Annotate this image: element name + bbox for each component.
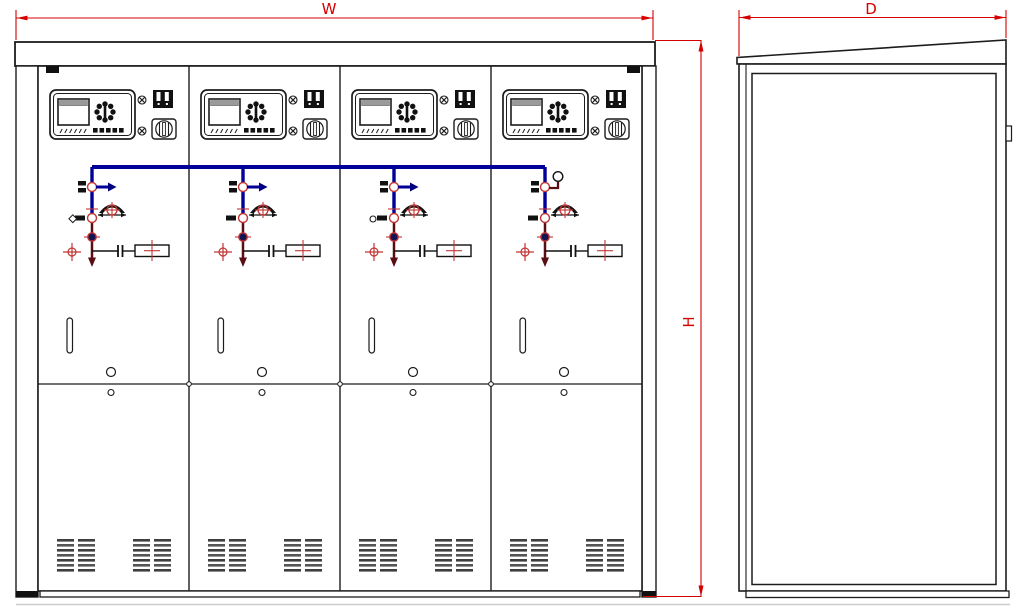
height-label: H [680, 316, 698, 327]
depth-label: D [865, 0, 877, 18]
drawing-canvas: W H D [0, 0, 1021, 608]
base-channel [40, 591, 640, 597]
side-view [737, 40, 1012, 598]
width-label: W [322, 0, 337, 18]
dim-arrow-right [642, 16, 653, 21]
side-base-channel [746, 591, 1009, 598]
dimension-w: W [16, 0, 653, 40]
front-view [15, 42, 656, 597]
dim-arrow-left [740, 15, 751, 20]
right-end-plate [642, 66, 656, 597]
corner-tab-right [627, 66, 640, 73]
dim-arrow-right [995, 15, 1006, 20]
drawing-sheet: W H D [0, 0, 1021, 608]
dim-arrow-up [699, 41, 704, 52]
sloped-top-plate [737, 40, 1006, 64]
hinge [1006, 126, 1012, 141]
side-door-panel [752, 74, 996, 585]
corner-tab-left [46, 66, 59, 73]
top-plate [15, 42, 655, 66]
dim-arrow-left [17, 16, 28, 21]
divider-bolt [489, 382, 494, 387]
left-end-plate-foot [16, 591, 38, 597]
dim-arrow-down [699, 586, 704, 597]
divider-bolt [187, 382, 192, 387]
aux-circle-mark [370, 216, 376, 222]
divider-bolt [338, 382, 343, 387]
left-end-plate [16, 66, 38, 597]
